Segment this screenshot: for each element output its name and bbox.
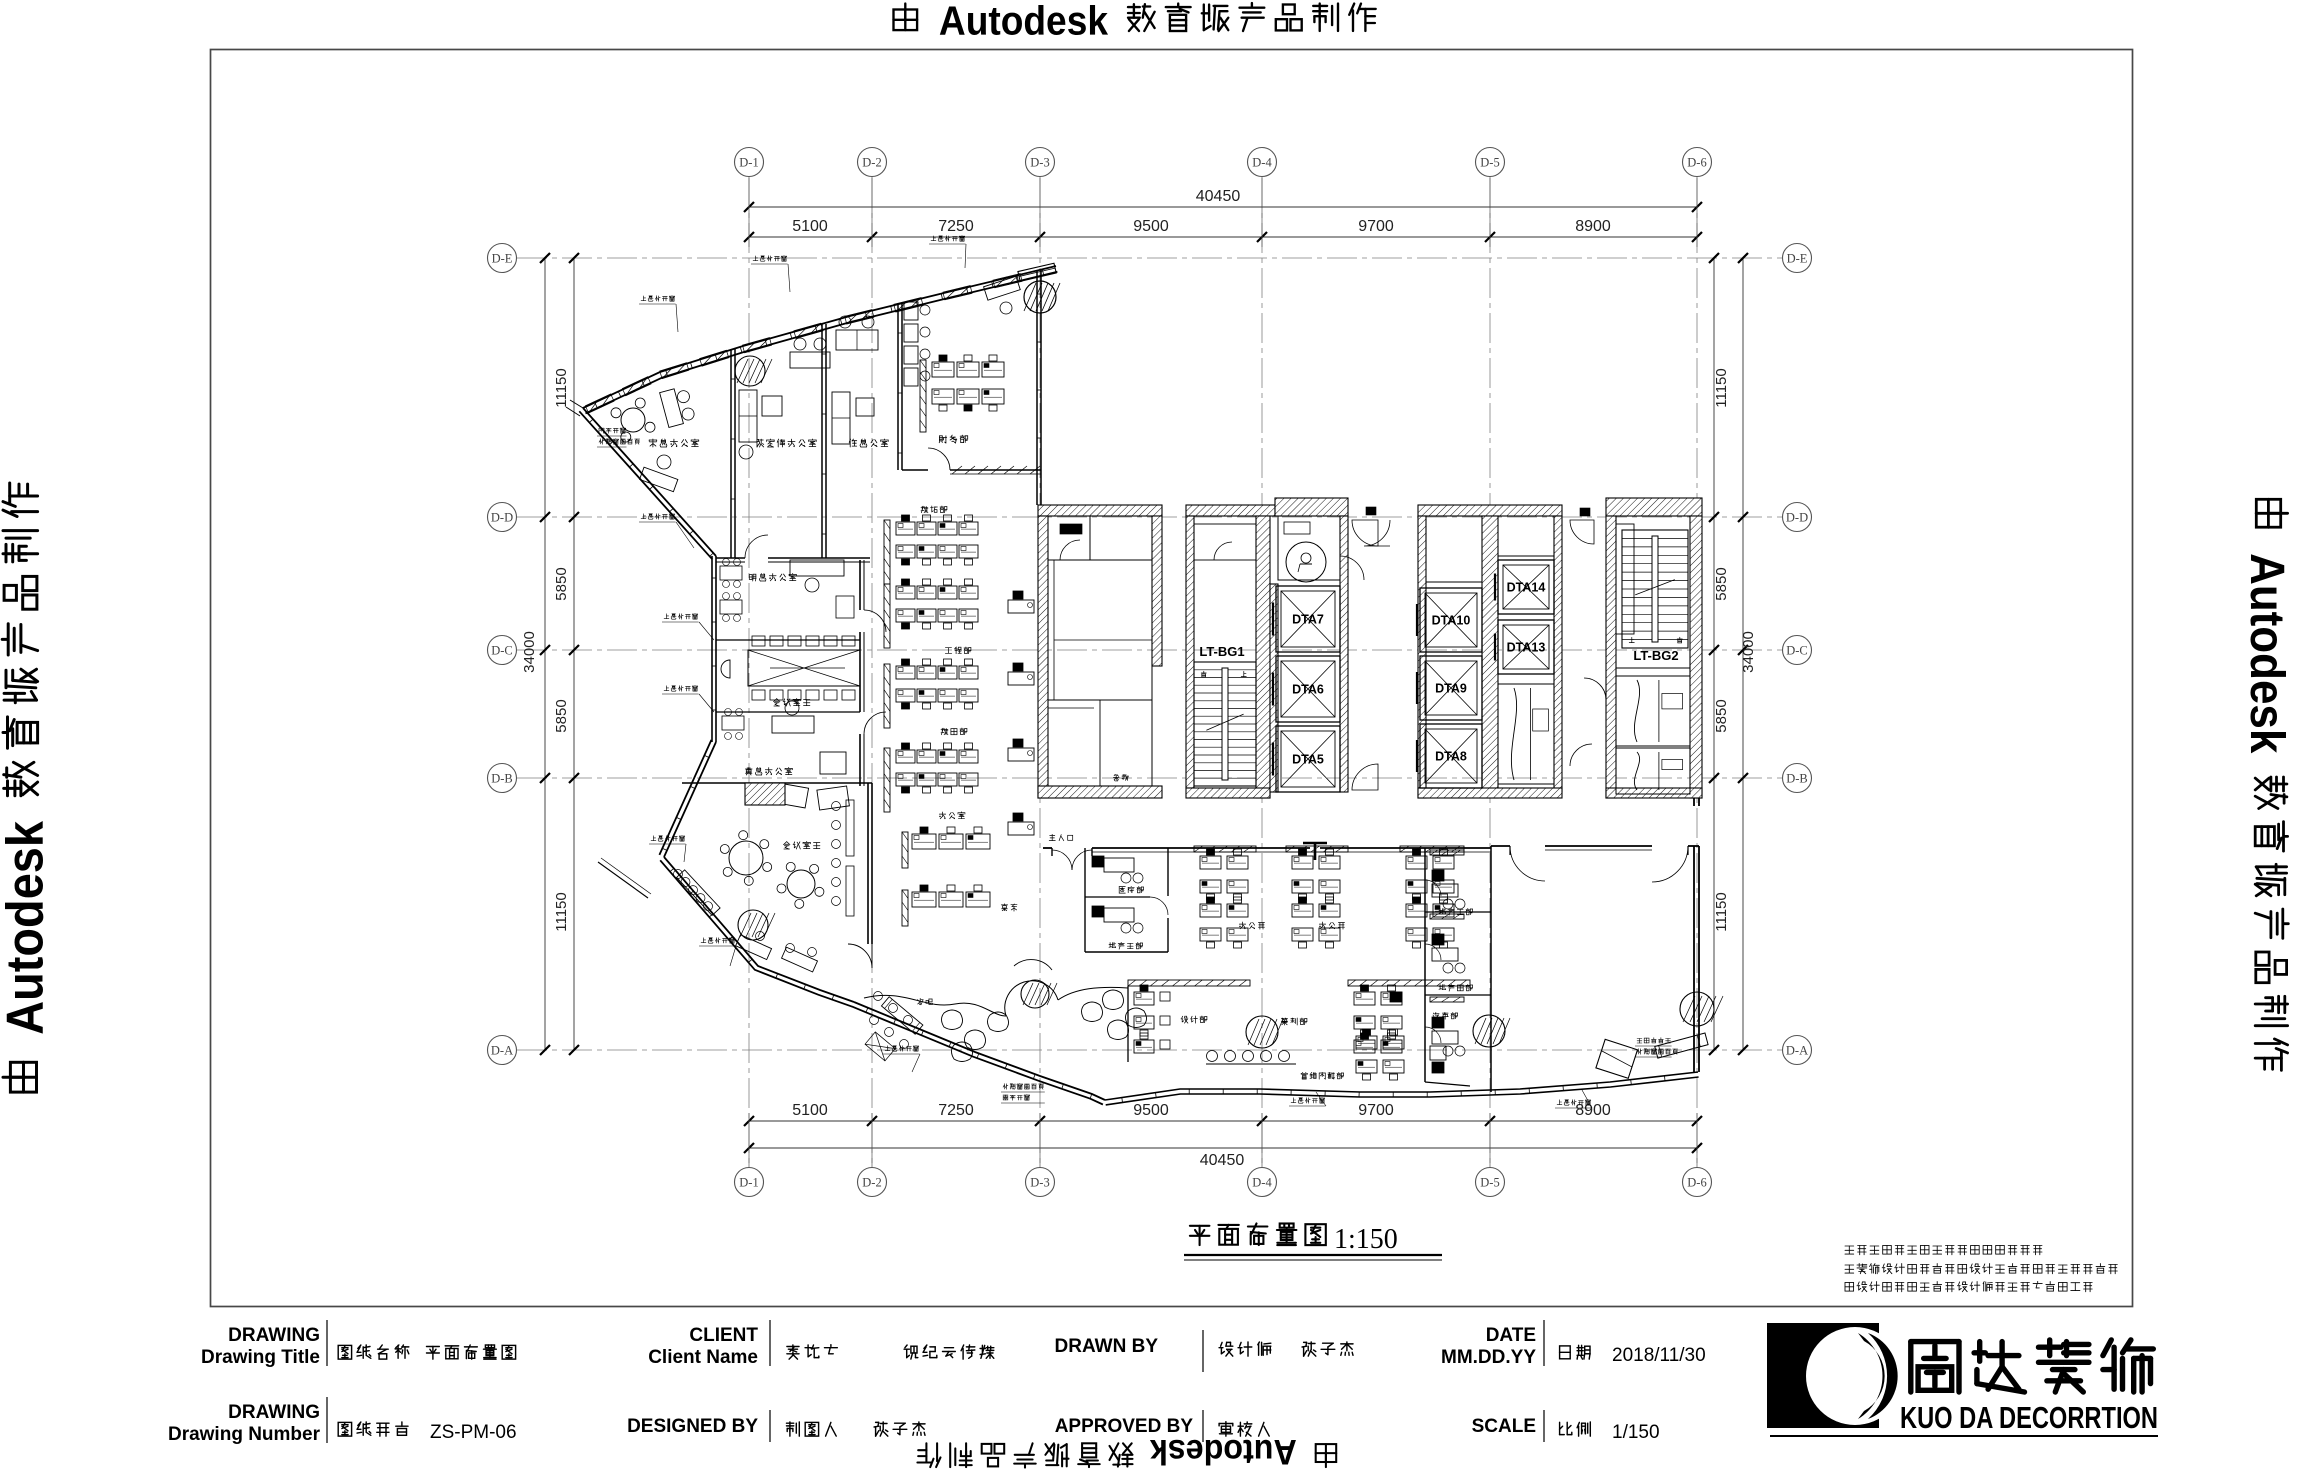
svg-text:D-3: D-3 bbox=[1030, 1176, 1049, 1190]
svg-text:D-B: D-B bbox=[491, 772, 513, 786]
svg-text:Autodesk: Autodesk bbox=[2240, 553, 2294, 754]
svg-text:D-C: D-C bbox=[1786, 644, 1808, 658]
svg-text:9500: 9500 bbox=[1133, 218, 1169, 235]
svg-text:MM.DD.YY: MM.DD.YY bbox=[1441, 1347, 1536, 1368]
svg-text:D-3: D-3 bbox=[1030, 156, 1049, 170]
svg-text:9500: 9500 bbox=[1133, 1102, 1169, 1119]
svg-text:Drawing Number: Drawing Number bbox=[168, 1424, 321, 1445]
svg-text:2018/11/30: 2018/11/30 bbox=[1612, 1345, 1706, 1366]
svg-text:Client Name: Client Name bbox=[648, 1347, 758, 1368]
svg-text:DRAWN BY: DRAWN BY bbox=[1055, 1336, 1159, 1357]
svg-text:D-5: D-5 bbox=[1480, 1176, 1499, 1190]
svg-text:5850: 5850 bbox=[553, 567, 570, 600]
svg-text:40450: 40450 bbox=[1200, 1152, 1245, 1169]
svg-text:5850: 5850 bbox=[1713, 699, 1730, 732]
svg-text:34000: 34000 bbox=[1740, 631, 1757, 673]
svg-text:DTA9: DTA9 bbox=[1435, 682, 1467, 696]
svg-text:DTA13: DTA13 bbox=[1507, 641, 1546, 655]
svg-text:DESIGNED BY: DESIGNED BY bbox=[627, 1416, 758, 1437]
svg-text:5100: 5100 bbox=[792, 218, 828, 235]
svg-text:9700: 9700 bbox=[1358, 1102, 1394, 1119]
svg-text:D-4: D-4 bbox=[1252, 156, 1272, 170]
svg-text:D-4: D-4 bbox=[1252, 1176, 1272, 1190]
svg-text:11150: 11150 bbox=[553, 892, 570, 932]
svg-text:11150: 11150 bbox=[1713, 892, 1730, 932]
svg-text:40450: 40450 bbox=[1196, 188, 1241, 205]
svg-text:7250: 7250 bbox=[938, 218, 974, 235]
svg-text:34000: 34000 bbox=[521, 631, 538, 673]
svg-text:5850: 5850 bbox=[553, 699, 570, 732]
svg-text:DRAWING: DRAWING bbox=[228, 1402, 320, 1423]
svg-text:DRAWING: DRAWING bbox=[228, 1325, 320, 1346]
svg-text:LT-BG2: LT-BG2 bbox=[1633, 648, 1678, 663]
svg-text:8900: 8900 bbox=[1575, 218, 1611, 235]
svg-text:D-6: D-6 bbox=[1687, 1176, 1706, 1190]
svg-text:DTA7: DTA7 bbox=[1292, 613, 1324, 627]
svg-text:DTA8: DTA8 bbox=[1435, 750, 1467, 764]
svg-text:SCALE: SCALE bbox=[1472, 1416, 1536, 1437]
svg-text:DTA14: DTA14 bbox=[1507, 581, 1546, 595]
svg-text:DTA6: DTA6 bbox=[1292, 683, 1324, 697]
svg-text:D-2: D-2 bbox=[862, 1176, 881, 1190]
svg-text:D-D: D-D bbox=[491, 511, 513, 525]
svg-text:D-6: D-6 bbox=[1687, 156, 1706, 170]
svg-text:11150: 11150 bbox=[1713, 368, 1730, 408]
svg-text:D-A: D-A bbox=[491, 1044, 513, 1058]
svg-text:D-1: D-1 bbox=[739, 1176, 758, 1190]
svg-text:KUO DA DECORRTION: KUO DA DECORRTION bbox=[1900, 1400, 2158, 1435]
svg-text:CLIENT: CLIENT bbox=[689, 1325, 758, 1346]
svg-text:D-D: D-D bbox=[1786, 511, 1808, 525]
svg-text:5100: 5100 bbox=[792, 1102, 828, 1119]
svg-text:11150: 11150 bbox=[553, 368, 570, 408]
svg-text:D-C: D-C bbox=[491, 644, 513, 658]
svg-text:D-2: D-2 bbox=[862, 156, 881, 170]
svg-text:DTA10: DTA10 bbox=[1432, 614, 1471, 628]
svg-text:8900: 8900 bbox=[1575, 1102, 1611, 1119]
svg-text:1:150: 1:150 bbox=[1334, 1224, 1398, 1255]
svg-text:APPROVED BY: APPROVED BY bbox=[1055, 1416, 1194, 1437]
svg-text:D-B: D-B bbox=[1786, 772, 1808, 786]
svg-text:LT-BG1: LT-BG1 bbox=[1199, 644, 1244, 659]
svg-text:ZS-PM-06: ZS-PM-06 bbox=[430, 1422, 517, 1443]
svg-text:7250: 7250 bbox=[938, 1102, 974, 1119]
svg-text:DTA5: DTA5 bbox=[1292, 753, 1324, 767]
svg-text:D-1: D-1 bbox=[739, 156, 758, 170]
svg-text:Autodesk: Autodesk bbox=[0, 821, 53, 1035]
svg-text:9700: 9700 bbox=[1358, 218, 1394, 235]
svg-text:D-E: D-E bbox=[492, 252, 513, 266]
svg-text:Autodesk: Autodesk bbox=[939, 0, 1108, 44]
svg-text:Drawing Title: Drawing Title bbox=[201, 1347, 320, 1368]
svg-text:D-E: D-E bbox=[1787, 252, 1808, 266]
svg-text:1/150: 1/150 bbox=[1612, 1422, 1660, 1443]
svg-text:5850: 5850 bbox=[1713, 567, 1730, 600]
svg-text:Autodesk: Autodesk bbox=[1150, 1432, 1297, 1472]
svg-text:D-A: D-A bbox=[1786, 1044, 1808, 1058]
svg-text:DATE: DATE bbox=[1486, 1325, 1536, 1346]
svg-text:D-5: D-5 bbox=[1480, 156, 1499, 170]
